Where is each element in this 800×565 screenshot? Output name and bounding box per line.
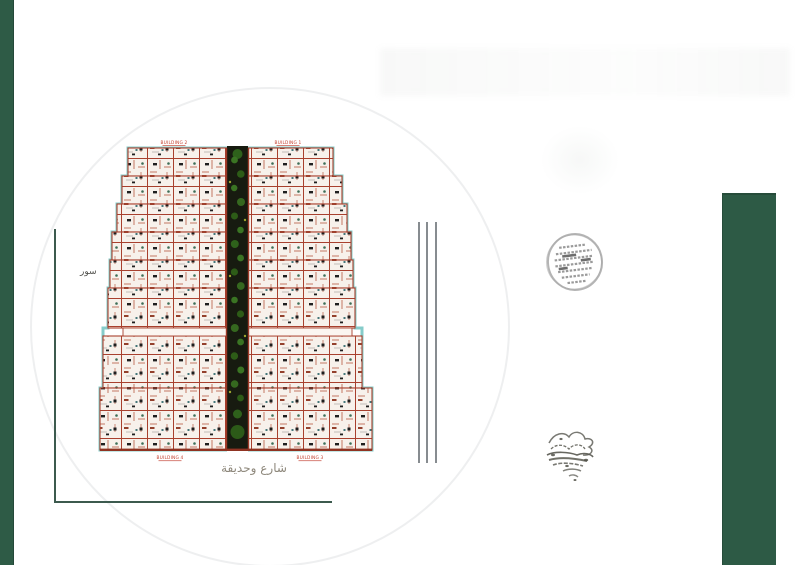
building-right-wing [248, 148, 372, 450]
street-annotation-label: شارع وحديقة [196, 461, 312, 475]
site-plan-drawing: BUILDING 2 BUILDING 1 BUILDING 4 BUILDIN… [95, 130, 380, 475]
building-label-top-left: BUILDING 2 [161, 140, 188, 146]
building-left-wing [100, 148, 227, 450]
official-round-stamp-icon [543, 229, 607, 295]
scanned-document-page: BUILDING 2 BUILDING 1 BUILDING 4 BUILDIN… [0, 0, 800, 565]
side-annotation-label: سور [80, 267, 97, 277]
faded-ink-smudge [380, 48, 790, 96]
dimension-line [426, 222, 428, 463]
central-road [227, 146, 248, 450]
dimension-line [435, 222, 437, 463]
handwritten-signature-stamp-icon [539, 425, 603, 487]
plan-base-wall [100, 449, 372, 451]
left-green-bar [0, 0, 14, 565]
faded-ink-smudge [540, 125, 620, 195]
building-label-top-right: BUILDING 1 [275, 140, 302, 146]
building-label-bottom-left: BUILDING 4 [157, 455, 184, 461]
dimension-line [418, 222, 420, 463]
right-green-panel [722, 193, 776, 565]
